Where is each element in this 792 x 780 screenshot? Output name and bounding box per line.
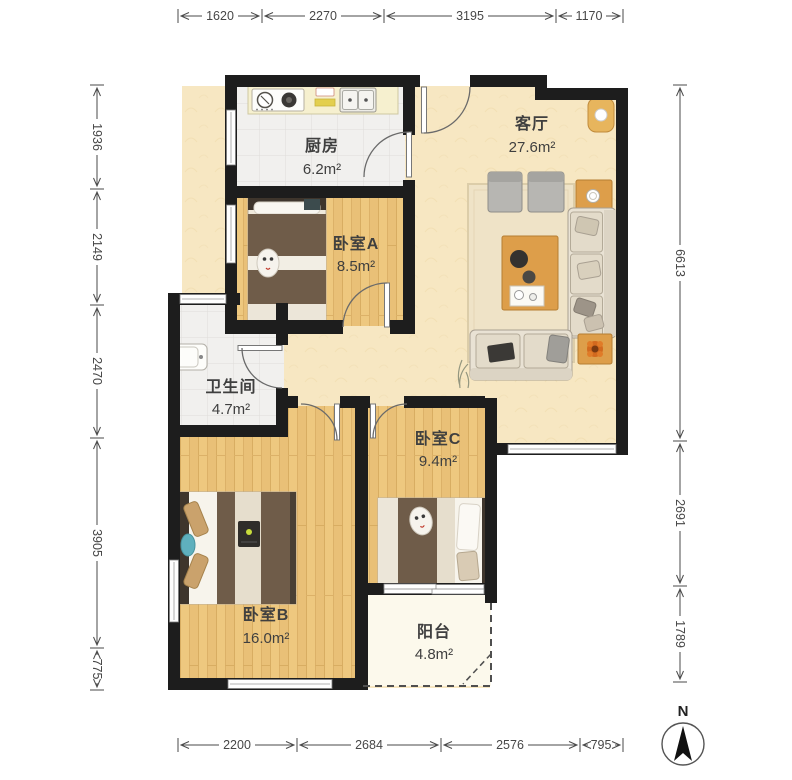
coffee-table — [502, 236, 558, 310]
dim-label: 1620 — [206, 9, 234, 23]
room-label-bedroom-b: 卧室B — [243, 605, 290, 624]
dim-label: 2200 — [223, 738, 251, 752]
bed-b — [178, 492, 296, 604]
window — [180, 295, 226, 304]
kitchen-towel — [315, 99, 335, 106]
room-area-balcony: 4.8m² — [415, 646, 453, 663]
room-area-living: 27.6m² — [509, 139, 556, 156]
dim-label: 1936 — [90, 123, 104, 151]
window — [227, 110, 236, 165]
room-label-living: 客厅 — [515, 114, 549, 133]
dimensions-top: 1620 2270 3195 1170 — [178, 9, 623, 23]
side-table — [578, 334, 612, 364]
dim-label: 2576 — [496, 738, 524, 752]
armchair — [528, 172, 564, 212]
bed-a — [248, 196, 326, 320]
room-area-bedroom-c: 9.4m² — [419, 453, 457, 470]
dim-label: 2691 — [673, 499, 687, 527]
laptop-icon — [238, 521, 260, 547]
window — [508, 445, 616, 454]
window — [170, 560, 179, 622]
dim-label: 3905 — [90, 529, 104, 557]
kitchen-item — [316, 88, 334, 96]
room-label-kitchen: 厨房 — [305, 136, 339, 155]
sink-icon — [340, 88, 376, 112]
bed-c — [378, 498, 492, 592]
dimensions-bottom: 2200 2684 2576 795 — [178, 738, 623, 752]
north-arrow-icon — [674, 726, 692, 761]
room-area-kitchen: 6.2m² — [303, 161, 341, 178]
side-table — [576, 180, 612, 212]
sofa — [568, 208, 616, 338]
floor-plan: 厨房 6.2m² 客厅 27.6m² 卧室A 8.5m² 卫生间 4.7m² 卧… — [0, 0, 792, 780]
room-label-bedroom-a: 卧室A — [333, 234, 380, 253]
loveseat — [470, 330, 572, 380]
stool — [588, 98, 614, 132]
window — [227, 205, 236, 263]
room-label-bedroom-c: 卧室C — [415, 429, 462, 448]
kitchen-counter — [248, 86, 398, 114]
dim-label: 2470 — [90, 357, 104, 385]
north-compass: N — [662, 703, 704, 765]
nightstand — [304, 199, 320, 210]
room-area-bedroom-b: 16.0m² — [243, 630, 290, 647]
dim-label: 6613 — [673, 249, 687, 277]
dim-label: 2149 — [90, 233, 104, 261]
pet-mat — [257, 249, 279, 277]
room-label-balcony: 阳台 — [417, 622, 451, 641]
dim-label: 1170 — [576, 9, 603, 23]
dim-label: 795 — [591, 738, 612, 752]
armchair — [488, 172, 522, 212]
sliding-door — [384, 584, 484, 594]
dimensions-right: 6613 2691 1789 — [673, 85, 687, 682]
dim-label: 2684 — [355, 738, 383, 752]
room-area-bedroom-a: 8.5m² — [337, 258, 375, 275]
floor-plan-drawing: 厨房 6.2m² 客厅 27.6m² 卧室A 8.5m² 卫生间 4.7m² 卧… — [0, 0, 792, 780]
dimensions-left: 1936 2149 2470 3905 775 — [90, 85, 104, 690]
dim-label: 2270 — [309, 9, 337, 23]
dim-label: 775 — [90, 659, 104, 680]
room-area-bathroom: 4.7m² — [212, 401, 250, 418]
compass-label: N — [678, 703, 689, 720]
room-label-bathroom: 卫生间 — [205, 377, 256, 396]
stove-icon — [252, 89, 304, 111]
dim-label: 3195 — [456, 9, 484, 23]
window — [228, 680, 332, 689]
dim-label: 1789 — [673, 620, 687, 648]
